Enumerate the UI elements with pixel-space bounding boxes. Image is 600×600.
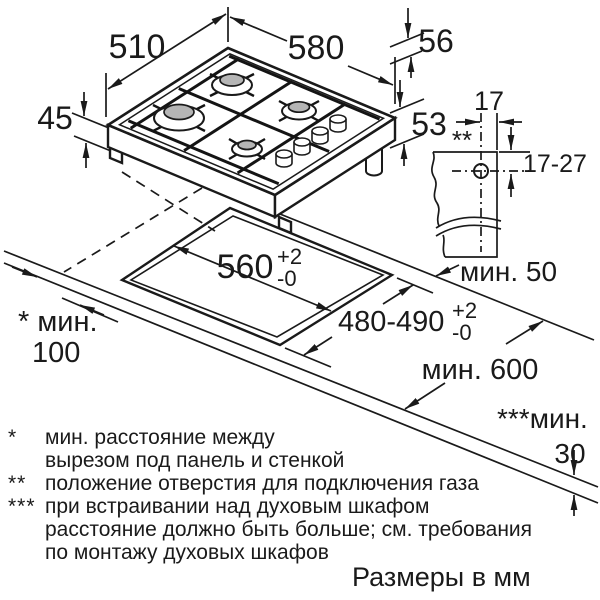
footnote-line: вырезом под панель и стенкой bbox=[45, 449, 344, 472]
footnote-text: при встраивании над духовым шкафом расст… bbox=[45, 495, 532, 564]
dim-width-label: 580 bbox=[288, 29, 345, 67]
burner-front-cap bbox=[238, 141, 256, 150]
footnote-row: ** положение отверстия для подключения г… bbox=[8, 472, 592, 495]
cutout-depth-tol-minus: -0 bbox=[452, 320, 472, 345]
dim-height-gas-label: 53 bbox=[411, 106, 447, 142]
break-lines bbox=[436, 217, 501, 236]
hob-isometric bbox=[108, 48, 395, 233]
dim-depth-label: 510 bbox=[109, 28, 166, 66]
footnote-text: положение отверстия для подключения газа bbox=[45, 472, 479, 495]
burner-right-cap bbox=[289, 102, 310, 112]
gas-note-marker: ** bbox=[452, 125, 472, 155]
footnote-marker: *** bbox=[8, 495, 45, 518]
footnotes: * мин. расстояние между вырезом под пане… bbox=[8, 426, 592, 564]
footnote-row: * мин. расстояние между вырезом под пане… bbox=[8, 426, 592, 472]
min-rear-label: мин. 50 bbox=[460, 256, 557, 287]
footnote-line: мин. расстояние между bbox=[45, 426, 344, 449]
units-note: Размеры в мм bbox=[352, 562, 531, 593]
footnote-line: расстояние должно быть больше; см. требо… bbox=[45, 518, 532, 541]
dim-17-27: 17-27 bbox=[499, 127, 587, 197]
footnote-row: *** при встраивании над духовым шкафом р… bbox=[8, 495, 592, 564]
profile-broken-edge-lower bbox=[443, 235, 445, 257]
dim-gas-range-label: 17-27 bbox=[523, 150, 587, 178]
dim-height-total-label: 56 bbox=[418, 23, 454, 59]
footnote-text: мин. расстояние между вырезом под панель… bbox=[45, 426, 344, 472]
min-side-label: * мин. bbox=[18, 306, 98, 338]
footnote-marker: * bbox=[8, 426, 45, 449]
cutout-width-tol-minus: -0 bbox=[277, 266, 297, 291]
dim-45: 45 bbox=[37, 92, 111, 168]
profile-broken-edge bbox=[432, 152, 439, 226]
installation-diagram: 510 580 45 56 53 17 ** 17 bbox=[0, 0, 600, 600]
footnote-line: положение отверстия для подключения газа bbox=[45, 472, 479, 495]
burner-left-cap bbox=[164, 105, 194, 120]
dim-56: 56 bbox=[390, 8, 454, 78]
dim-gas-offset-label: 17 bbox=[474, 86, 504, 116]
min-side-value: 100 bbox=[32, 337, 80, 369]
footnote-marker: ** bbox=[8, 472, 45, 495]
footnote-line: при встраивании над духовым шкафом bbox=[45, 495, 532, 518]
burner-back-cap bbox=[220, 74, 244, 86]
dim-height-front-label: 45 bbox=[37, 100, 73, 136]
min-worktop-depth-label: мин. 600 bbox=[422, 354, 539, 386]
footnote-line: по монтажу духовых шкафов bbox=[45, 541, 532, 564]
dim-cutout-depth-label: 480-490 bbox=[338, 306, 444, 338]
dim-cutout-width-label: 560 bbox=[217, 248, 274, 286]
dim-min-50: мин. 50 bbox=[436, 256, 557, 287]
dim-53: 53 bbox=[390, 80, 447, 166]
dim-min-100: * мин. 100 bbox=[12, 267, 118, 369]
